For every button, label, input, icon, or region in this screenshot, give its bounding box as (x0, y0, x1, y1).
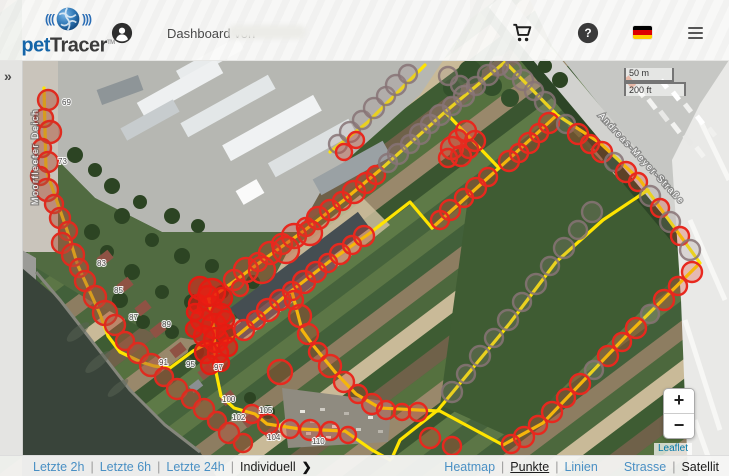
gps-point[interactable] (281, 420, 299, 438)
house-number-label: 87 (129, 313, 138, 322)
house-number-label: 95 (186, 360, 195, 369)
house-number-label: 85 (114, 286, 123, 295)
base-strasse[interactable]: Strasse (624, 460, 666, 474)
scale-imperial: 200 ft (624, 82, 686, 96)
gps-point[interactable] (377, 401, 395, 419)
bottom-bar: Letzte 2h | Letzte 6h | Letzte 24h | Ind… (0, 455, 729, 476)
gps-point[interactable] (502, 435, 520, 453)
gps-point[interactable] (298, 324, 318, 344)
gps-point[interactable] (409, 403, 427, 421)
gps-point[interactable] (258, 414, 278, 434)
gps-point[interactable] (268, 360, 292, 384)
filter-last-24h[interactable]: Letzte 24h (166, 460, 224, 474)
house-number-label: 89 (162, 320, 171, 329)
separator: | (231, 460, 234, 474)
top-bar: ((( ))) petTracerTM Dashboard vo (0, 0, 729, 61)
filter-last-2h[interactable]: Letzte 2h (33, 460, 84, 474)
gps-point[interactable] (582, 202, 602, 222)
german-flag-language[interactable] (633, 26, 652, 39)
flag-stripe-gold (633, 35, 652, 39)
gps-point[interactable] (348, 132, 364, 148)
gps-point[interactable] (535, 92, 555, 112)
gps-point[interactable] (498, 310, 518, 330)
house-number-label: 110 (312, 437, 325, 446)
layer-heatmap[interactable]: Heatmap (444, 460, 495, 474)
account-icon[interactable] (111, 22, 133, 44)
gps-point[interactable] (394, 404, 410, 420)
gps-point[interactable] (513, 293, 531, 311)
separator: | (501, 460, 504, 474)
satellite-map[interactable]: 697383858789919597100102104105110Moorfle… (0, 0, 729, 476)
gps-point[interactable] (442, 382, 462, 402)
gps-point[interactable] (273, 237, 299, 263)
gps-point[interactable] (485, 329, 503, 347)
base-satellit[interactable]: Satellit (681, 460, 719, 474)
pettracer-logo[interactable]: ((( ))) petTracerTM (8, 4, 128, 56)
gps-point[interactable] (439, 149, 457, 167)
gps-point[interactable] (234, 434, 252, 452)
gps-point[interactable] (340, 427, 356, 443)
house-number-label: 97 (214, 363, 223, 372)
house-number-label: 73 (58, 157, 67, 166)
expand-panel-button[interactable]: » (4, 68, 12, 84)
separator: | (672, 460, 675, 474)
collapsed-side-panel: » (0, 60, 23, 455)
layer-linien[interactable]: Linien (564, 460, 597, 474)
gps-point[interactable] (680, 240, 700, 260)
pettracer-dashboard: 697383858789919597100102104105110Moorfle… (0, 0, 729, 476)
house-number-label: 91 (159, 358, 168, 367)
gps-point[interactable] (187, 304, 203, 320)
layer-filter-group: Heatmap | Punkte | Linien Strasse | Sate… (444, 460, 719, 474)
leaflet-attribution[interactable]: Leaflet (654, 443, 692, 455)
gps-point[interactable] (569, 221, 587, 239)
gps-point[interactable] (298, 221, 322, 245)
layer-punkte[interactable]: Punkte (510, 460, 549, 474)
svg-text:?: ? (584, 26, 591, 40)
gps-point[interactable] (499, 151, 519, 171)
house-number-label: 100 (222, 395, 236, 404)
gps-point[interactable] (186, 321, 202, 337)
gps-point[interactable] (443, 437, 461, 455)
separator: | (157, 460, 160, 474)
gps-point[interactable] (232, 280, 248, 296)
gps-point[interactable] (456, 121, 476, 141)
logo-wordmark: petTracerTM (8, 34, 128, 55)
zoom-out-button[interactable]: − (664, 414, 694, 438)
scale-metric: 50 m (624, 68, 674, 82)
map-scale-control: 50 m 200 ft (624, 68, 686, 96)
house-number-label: 102 (232, 413, 246, 422)
gps-point[interactable] (451, 76, 469, 94)
gps-point[interactable] (399, 65, 417, 83)
separator: | (90, 460, 93, 474)
zoom-control: + − (663, 388, 695, 439)
filter-last-6h[interactable]: Letzte 6h (100, 460, 151, 474)
globe-icon (54, 5, 82, 33)
gps-point[interactable] (219, 338, 237, 356)
menu-icon[interactable] (688, 27, 703, 39)
house-number-label: 105 (259, 406, 273, 415)
gps-point[interactable] (526, 274, 546, 294)
gps-point[interactable] (198, 286, 218, 306)
signal-waves-right-icon: ))) (82, 12, 91, 26)
gps-point[interactable] (470, 346, 490, 366)
house-number-label: 83 (97, 259, 106, 268)
separator: | (555, 460, 558, 474)
gps-point[interactable] (431, 211, 449, 229)
gps-point[interactable] (457, 365, 475, 383)
chevron-right-icon[interactable]: ❯ (302, 460, 312, 474)
filter-individual[interactable]: Individuell (240, 460, 296, 474)
help-icon[interactable]: ? (577, 22, 599, 44)
zoom-in-button[interactable]: + (664, 389, 694, 414)
gps-point[interactable] (541, 257, 559, 275)
house-number-label: 104 (267, 433, 281, 442)
signal-waves-left-icon: ((( (45, 12, 54, 26)
gps-point[interactable] (249, 257, 275, 283)
street-name-label: Moorfleeter Deich (30, 108, 40, 205)
gps-point[interactable] (554, 238, 574, 258)
time-filter-group: Letzte 2h | Letzte 6h | Letzte 24h | Ind… (33, 460, 312, 474)
gps-point[interactable] (38, 90, 58, 110)
gps-point[interactable] (354, 226, 374, 246)
house-number-label: 69 (62, 98, 71, 107)
shop-cart-icon[interactable] (510, 21, 533, 44)
gps-point[interactable] (420, 428, 440, 448)
redacted-username (228, 25, 306, 39)
